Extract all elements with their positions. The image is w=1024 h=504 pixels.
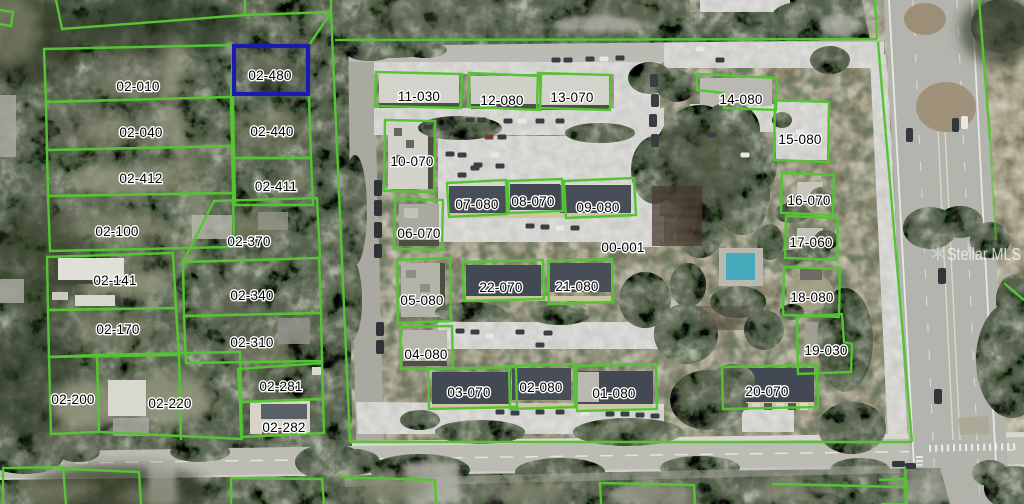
- svg-text:02-200: 02-200: [51, 392, 94, 407]
- svg-text:19-030: 19-030: [804, 343, 847, 358]
- svg-text:13-070: 13-070: [550, 90, 593, 105]
- svg-text:10-070: 10-070: [390, 154, 433, 169]
- svg-text:07-080: 07-080: [455, 197, 498, 212]
- svg-text:02-370: 02-370: [227, 234, 270, 249]
- svg-text:02-170: 02-170: [96, 322, 139, 337]
- svg-text:02-141: 02-141: [93, 273, 136, 288]
- svg-text:20-070: 20-070: [745, 384, 788, 399]
- svg-text:14-080: 14-080: [719, 92, 762, 107]
- svg-text:12-080: 12-080: [480, 93, 523, 108]
- svg-text:02-310: 02-310: [230, 335, 273, 350]
- svg-text:16-070: 16-070: [787, 193, 830, 208]
- svg-text:18-080: 18-080: [790, 290, 833, 305]
- svg-text:15-080: 15-080: [778, 132, 821, 147]
- svg-text:02-411: 02-411: [255, 179, 297, 194]
- svg-text:02-440: 02-440: [250, 124, 293, 139]
- svg-text:21-080: 21-080: [555, 279, 598, 294]
- svg-text:04-080: 04-080: [404, 347, 447, 362]
- svg-text:06-070: 06-070: [397, 226, 440, 241]
- svg-text:02-080: 02-080: [519, 380, 562, 395]
- svg-text:02-040: 02-040: [119, 125, 162, 140]
- svg-text:02-340: 02-340: [230, 288, 273, 303]
- svg-text:Stellar MLS: Stellar MLS: [947, 244, 1021, 264]
- svg-text:09-080: 09-080: [576, 200, 619, 215]
- svg-text:02-220: 02-220: [148, 396, 191, 411]
- svg-text:02-010: 02-010: [116, 79, 159, 94]
- svg-text:02-100: 02-100: [95, 224, 138, 239]
- svg-text:02-281: 02-281: [259, 379, 302, 394]
- svg-text:02-282: 02-282: [262, 420, 305, 435]
- svg-text:11-030: 11-030: [398, 89, 440, 104]
- svg-text:17-060: 17-060: [789, 235, 832, 250]
- svg-text:00-001: 00-001: [601, 240, 644, 255]
- svg-text:05-080: 05-080: [400, 293, 443, 308]
- svg-text:02-412: 02-412: [119, 171, 162, 186]
- svg-text:03-070: 03-070: [447, 385, 490, 400]
- svg-text:22-070: 22-070: [479, 280, 522, 295]
- svg-text:02-480: 02-480: [248, 68, 291, 83]
- svg-text:01-080: 01-080: [592, 386, 635, 401]
- svg-text:08-070: 08-070: [511, 194, 554, 209]
